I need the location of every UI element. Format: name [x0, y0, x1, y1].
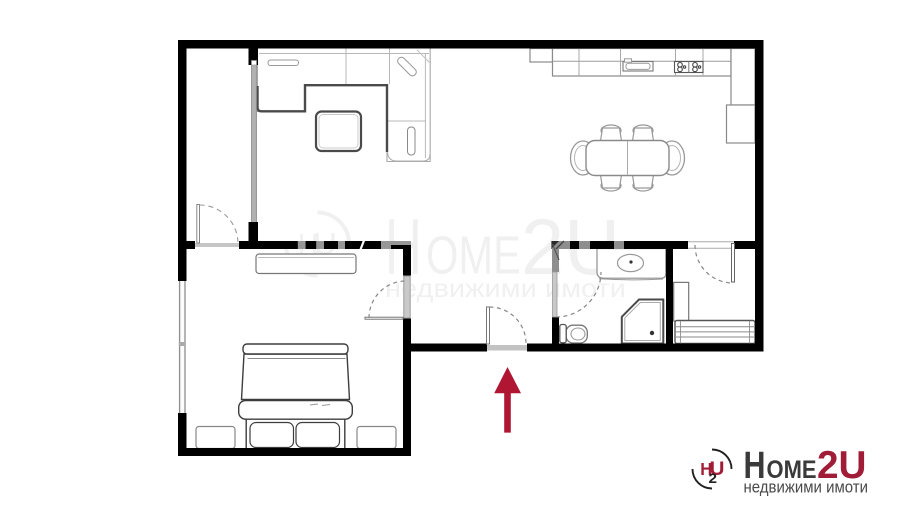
svg-text:недвижими имоти: недвижими имоти — [744, 478, 869, 497]
svg-text:2: 2 — [709, 471, 718, 486]
svg-text:недвижими имоти: недвижими имоти — [385, 273, 626, 303]
